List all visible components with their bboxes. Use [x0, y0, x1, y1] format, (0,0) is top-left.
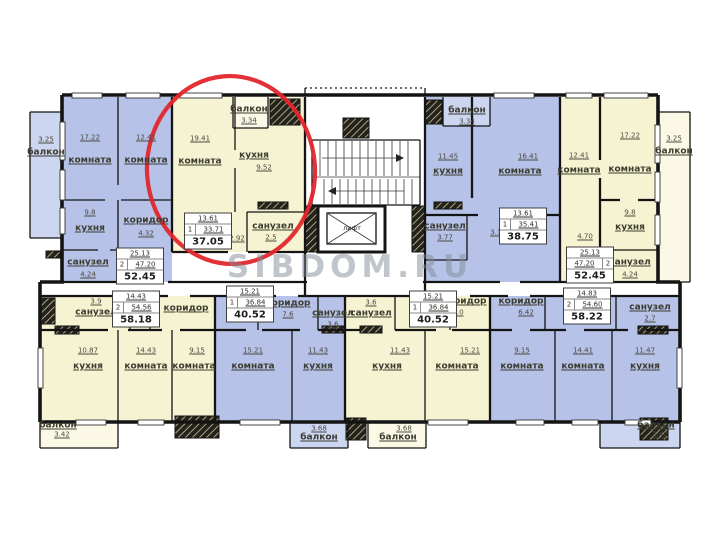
stamp-living-area: 13.61	[185, 214, 231, 225]
bathroom-area-number: 3.6	[327, 322, 338, 329]
stamp-middle-row: 254.60	[564, 300, 610, 311]
bathroom-area-number: 3.6	[365, 300, 376, 307]
apartment-area-stamp: 25.13247.2052.45	[116, 248, 164, 285]
balcony-label: балкон	[379, 434, 416, 443]
stamp-room-count: 1	[227, 298, 238, 308]
balcony-area-number: 3.68	[396, 426, 412, 433]
balcony-label: балкон	[39, 422, 76, 431]
stamp-room-count: 2	[564, 300, 575, 310]
corridor-area-number: 7.6	[282, 312, 293, 319]
dim-area-number: 4.70	[577, 234, 593, 241]
kitchen-area-number: 9.52	[256, 165, 272, 172]
kitchen-area-number: 11.45	[438, 154, 458, 161]
stamp-living-area: 14.83	[564, 289, 610, 300]
balcony-area-number: 3.34	[459, 119, 475, 126]
room-area-number: 16.41	[518, 154, 538, 161]
stamp-apartment-area: 36.84	[421, 303, 456, 313]
stamp-room-count: 2	[117, 260, 128, 270]
stamp-room-count: 1	[410, 303, 421, 313]
stamp-middle-row: 135.41	[500, 220, 546, 231]
stamp-total-area: 58.18	[113, 314, 159, 327]
stamp-middle-row: 136.84	[227, 298, 273, 309]
apartment-area-stamp: 14.43254.5658.18	[112, 291, 160, 328]
balcony-label: балкон	[448, 107, 485, 116]
stamp-total-area: 37.05	[185, 236, 231, 249]
kitchen-label: кухня	[372, 363, 402, 372]
room-label: комната	[608, 166, 651, 175]
balcony-area-number: 3.34	[241, 118, 257, 125]
watermark: SIBDOM.RU	[227, 249, 473, 285]
corridor-area-number: 6.42	[518, 310, 534, 317]
room-label: комната	[500, 363, 543, 372]
stamp-total-area: 40.52	[227, 309, 273, 322]
kitchen-label: кухня	[433, 168, 463, 177]
stamp-room-count: 1	[500, 220, 511, 230]
bathroom-area-number: 2.5	[265, 235, 276, 242]
bathroom-label: санузел	[312, 310, 353, 319]
stamp-living-area: 25.13	[117, 249, 163, 260]
stamp-middle-row: 47.202	[567, 259, 613, 270]
kitchen-area-number: 11.43	[390, 348, 410, 355]
room-label: комната	[498, 168, 541, 177]
stamp-apartment-area: 47.20	[567, 259, 602, 269]
balcony-area-number: 3.25	[38, 137, 54, 144]
room-label: комната	[68, 157, 111, 166]
apartment-area-stamp: 13.61133.7137.05	[184, 213, 232, 250]
stamp-living-area: 15.21	[410, 292, 456, 303]
bathroom-label: санузел	[424, 223, 465, 232]
room-label: комната	[178, 158, 221, 167]
corridor-label: коридор	[124, 217, 169, 226]
corridor-label: коридор	[499, 298, 544, 307]
bathroom-label: санузел	[252, 223, 293, 232]
stamp-apartment-area: 54.60	[575, 300, 610, 310]
room-label: комната	[231, 363, 274, 372]
stamp-living-area: 25.13	[567, 248, 613, 259]
stamp-middle-row: 136.84	[410, 303, 456, 314]
corridor-area-number: 4.32	[138, 231, 154, 238]
stamp-apartment-area: 36.84	[238, 298, 273, 308]
room-area-number: 14.43	[136, 348, 156, 355]
room-area-number: 12.41	[136, 135, 156, 142]
stamp-middle-row: 247.20	[117, 260, 163, 271]
kitchen-area-number: 9.8	[84, 210, 95, 217]
kitchen-label: кухня	[630, 363, 660, 372]
stamp-total-area: 52.45	[567, 270, 613, 283]
stamp-room-count: 2	[602, 259, 613, 269]
kitchen-label: кухня	[75, 225, 105, 234]
room-area-number: 19.41	[190, 136, 210, 143]
balcony-label: балкон	[27, 149, 64, 158]
stamp-apartment-area: 33.71	[196, 225, 231, 235]
apartment-area-stamp: 25.1347.20252.45	[566, 247, 614, 284]
balcony-label: балкон	[637, 422, 674, 431]
kitchen-area-number: 11.43	[308, 348, 328, 355]
apartment-area-stamp: 14.83254.6058.22	[563, 288, 611, 325]
stamp-total-area: 58.22	[564, 311, 610, 324]
kitchen-label: кухня	[239, 152, 269, 161]
bathroom-area-number: 2.7	[644, 316, 655, 323]
kitchen-area-number: 9.8	[624, 210, 635, 217]
stamp-living-area: 13.61	[500, 209, 546, 220]
stamp-living-area: 15.21	[227, 287, 273, 298]
stamp-total-area: 38.75	[500, 231, 546, 244]
kitchen-label: кухня	[73, 363, 103, 372]
room-area-number: 9.15	[514, 348, 530, 355]
stamp-apartment-area: 35.41	[511, 220, 546, 230]
bathroom-label: санузел	[67, 259, 108, 268]
bathroom-label: санузел	[609, 259, 650, 268]
room-area-number: 14.41	[573, 348, 593, 355]
room-area-number: 12.41	[569, 153, 589, 160]
apartment-area-stamp: 15.21136.8440.52	[409, 291, 457, 328]
stamp-total-area: 52.45	[117, 271, 163, 284]
bathroom-area-number: 4.24	[622, 272, 638, 279]
apartment-area-stamp: 15.21136.8440.52	[226, 286, 274, 323]
elevator-label: лифт	[343, 225, 361, 232]
balcony-label: балкон	[230, 106, 267, 115]
bathroom-label: санузел	[75, 309, 116, 318]
kitchen-area-number: 10.87	[78, 348, 98, 355]
floor-plan-page: балкон3.25комната17.22комната12.41кухня9…	[0, 0, 720, 540]
stamp-living-area: 14.43	[113, 292, 159, 303]
stamp-room-count: 1	[185, 225, 196, 235]
room-label: комната	[561, 363, 604, 372]
bathroom-label: санузел	[350, 310, 391, 319]
kitchen-area-number: 11.47	[635, 348, 655, 355]
balcony-area-number: 3.68	[311, 426, 327, 433]
room-area-number: 17.22	[620, 133, 640, 140]
bathroom-area-number: 3.9	[90, 299, 101, 306]
bathroom-label: санузел	[629, 304, 670, 313]
stamp-middle-row: 133.71	[185, 225, 231, 236]
room-label: комната	[435, 363, 478, 372]
balcony-area-number: 3.42	[652, 432, 668, 439]
kitchen-label: кухня	[303, 363, 333, 372]
kitchen-label: кухня	[615, 224, 645, 233]
room-area-number: 15.21	[243, 348, 263, 355]
bathroom-area-number: 4.24	[80, 272, 96, 279]
room-label: комната	[124, 157, 167, 166]
room-label: комната	[124, 363, 167, 372]
corridor-label: коридор	[164, 305, 209, 314]
room-area-number: 17.22	[80, 135, 100, 142]
stamp-room-count: 2	[113, 303, 124, 313]
balcony-label: балкон	[300, 434, 337, 443]
stamp-apartment-area: 54.56	[124, 303, 159, 313]
apartment-area-stamp: 13.61135.4138.75	[499, 208, 547, 245]
stamp-apartment-area: 47.20	[128, 260, 163, 270]
stamp-total-area: 40.52	[410, 314, 456, 327]
balcony-label: балкон	[655, 148, 692, 157]
balcony-area-number: 3.42	[54, 432, 70, 439]
stamp-middle-row: 254.56	[113, 303, 159, 314]
room-area-number: 9.15	[189, 348, 205, 355]
balcony-area-number: 3.25	[666, 136, 682, 143]
room-label: комната	[557, 167, 600, 176]
room-area-number: 15.21	[460, 348, 480, 355]
room-label: комната	[172, 363, 215, 372]
bathroom-area-number: 3.77	[437, 235, 453, 242]
